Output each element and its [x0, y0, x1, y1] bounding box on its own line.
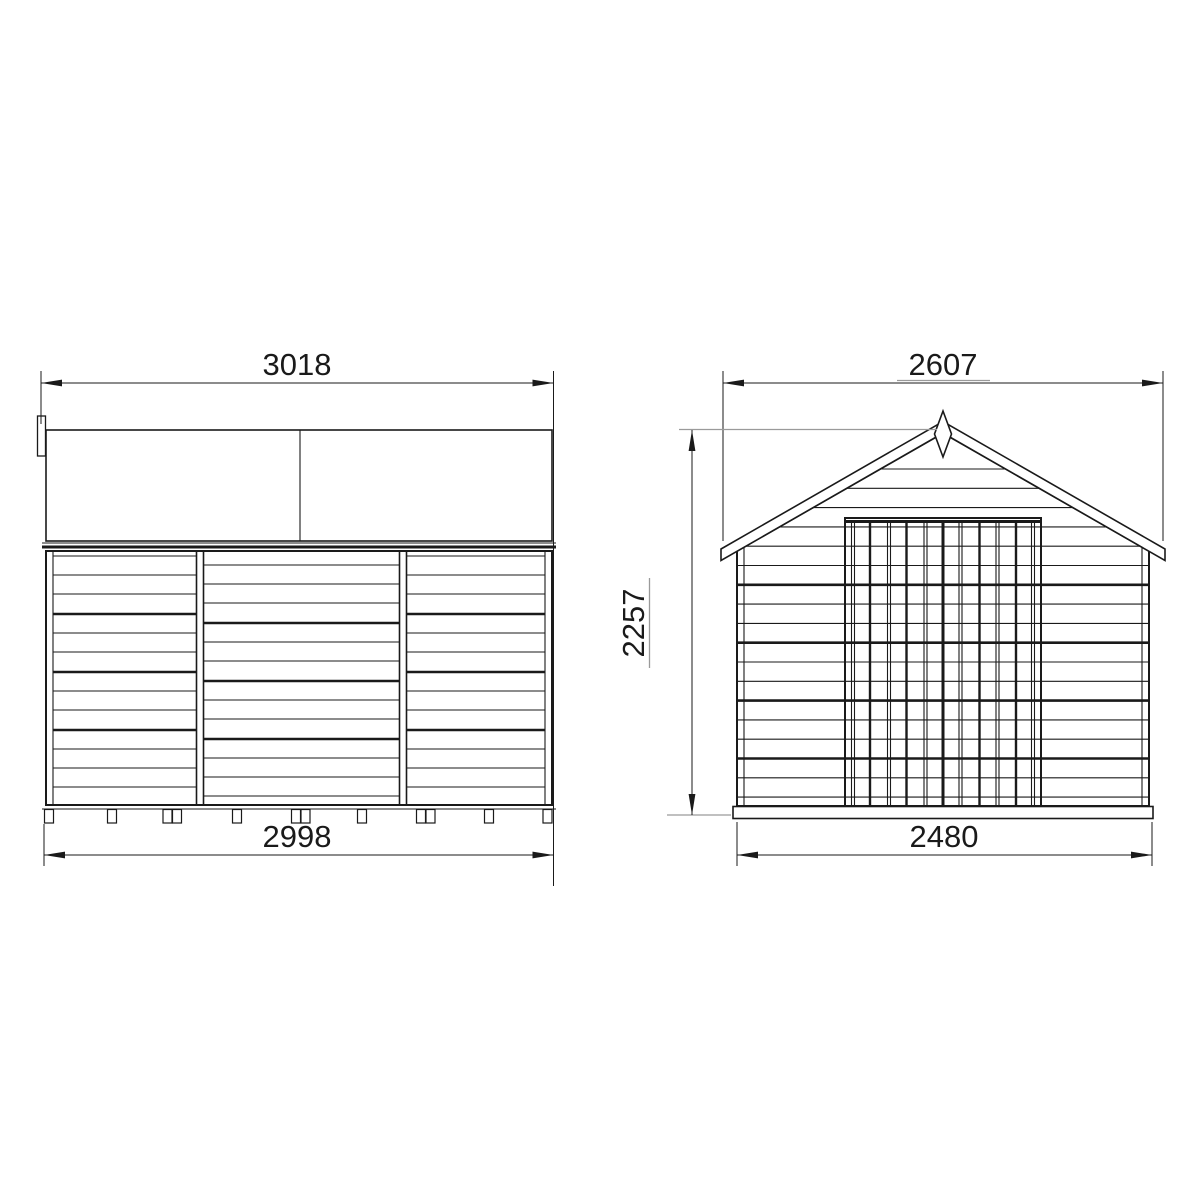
- side-panel-1-cladding: [53, 556, 197, 787]
- side-base-width-value: 2998: [263, 819, 332, 854]
- door-boards: [852, 521, 1035, 805]
- side-panel-3-cladding: [407, 556, 546, 787]
- front-height-value: 2257: [616, 589, 651, 658]
- front-floor-base: [733, 807, 1153, 819]
- front-elevation-view: 2607 2257 2480: [616, 347, 1165, 866]
- side-wall: [42, 551, 556, 809]
- side-panel-2-cladding: [204, 565, 400, 796]
- front-base-width-value: 2480: [910, 819, 979, 854]
- side-elevation-view: 3018 2998: [38, 347, 557, 886]
- shed-technical-drawing: 3018 2998: [0, 0, 1200, 1200]
- dimension-front-base-width: 2480: [737, 819, 1152, 866]
- drawing-canvas: 3018 2998: [0, 0, 1200, 1200]
- dimension-front-height: 2257: [616, 430, 937, 816]
- front-roof-width-value: 2607: [909, 347, 978, 382]
- dimension-side-base-width: 2998: [44, 819, 554, 866]
- apex-finial: [935, 411, 952, 457]
- side-roof-width-value: 3018: [263, 347, 332, 382]
- side-roof: [38, 416, 557, 552]
